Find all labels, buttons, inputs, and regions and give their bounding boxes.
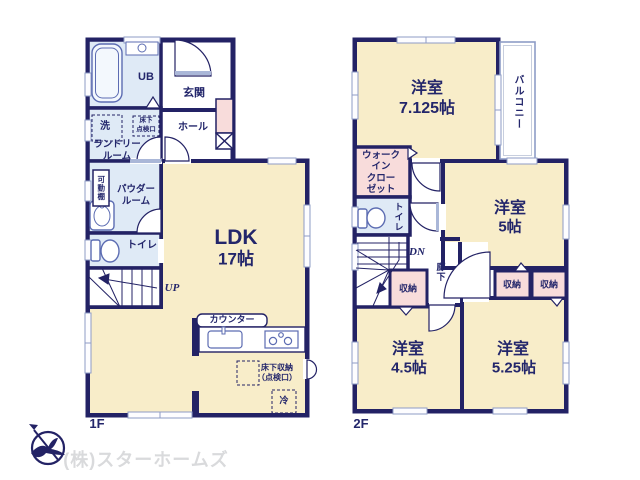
powder-sink [94,206,110,226]
label-fridge: 冷 [279,395,288,406]
room-label-bedroom1-size: 7.125帖 [399,99,455,119]
shoe-cabinet [216,99,233,133]
room-label-bedroom2: 洋室 [494,199,526,219]
entrance-door-leaf [175,71,211,75]
ub-vanity-sink [138,44,146,52]
burner [279,333,284,338]
wall-nook-jog [440,237,460,241]
stairs-dn-label: DN [409,246,425,260]
room-label-bedroom3-size: 4.5帖 [391,360,427,379]
room-label-entrance: 玄関 [183,87,205,101]
toilet-tank-1f [91,240,100,261]
stairs-1f [88,268,161,307]
room-label-toilet-2f: トイレ [394,202,403,232]
bathtub [92,44,122,102]
toilet-tank-2f [358,209,367,228]
stairs-up-label: UP [165,282,180,296]
door-leaf-toilet-2f [436,203,439,231]
room-label-ub: UB [138,71,154,85]
label-storage-mid: 収納 [503,279,521,290]
room-label-bedroom4: 洋室 [497,340,529,360]
room-label-ldk-size: 17帖 [218,248,254,269]
label-washer: 洗 [100,121,110,134]
floor-label-2f: 2F [353,416,368,432]
room-label-laundry: ランドリー ルーム [93,139,141,163]
room-label-bedroom1: 洋室 [411,79,443,99]
burner [284,337,291,344]
label-walk-in-closet: ウォーク イン クロー ゼット [362,150,400,196]
toilet-bowl-1f [101,240,119,262]
room-label-powder: パウダー ルーム [117,184,155,208]
floor-plan-drawing [0,0,640,480]
wall-bottom-stub [192,391,199,415]
label-storage-right: 収納 [540,279,558,290]
door-arc-ldk-exterior [307,360,317,379]
toilet-bowl-2f [367,208,385,228]
burner [269,337,276,344]
floor-plan-page: UB 玄関 ホール 洗 床下 点検口 ランドリー ルーム 可動棚 パウダー ルー… [0,0,640,480]
room-label-bedroom2-size: 5帖 [498,219,521,238]
room-label-bedroom4-size: 5.25帖 [492,360,536,379]
company-watermark: (株)スターホームズ [63,449,228,472]
label-balcony: バルコニー [512,75,522,130]
room-label-toilet-1f: トイレ [127,240,157,253]
crossed-box [216,133,233,149]
floor-plan-2f [352,37,569,414]
floor-label-1f: 1F [89,416,104,432]
label-underfloor-storage: 床下収納 （点検口） [257,363,297,383]
room-label-ldk: LDK [214,225,257,251]
room-label-bedroom3: 洋室 [392,340,424,360]
compass-icon [29,424,65,464]
room-label-hall: ホール [178,122,208,135]
label-underfloor-hatch: 床下 点検口 [136,117,156,135]
label-counter: カウンター [209,314,254,325]
label-movable-shelf: 可動棚 [97,175,105,201]
label-corridor: 廊下 [436,262,445,282]
label-storage-left: 収納 [399,283,417,294]
